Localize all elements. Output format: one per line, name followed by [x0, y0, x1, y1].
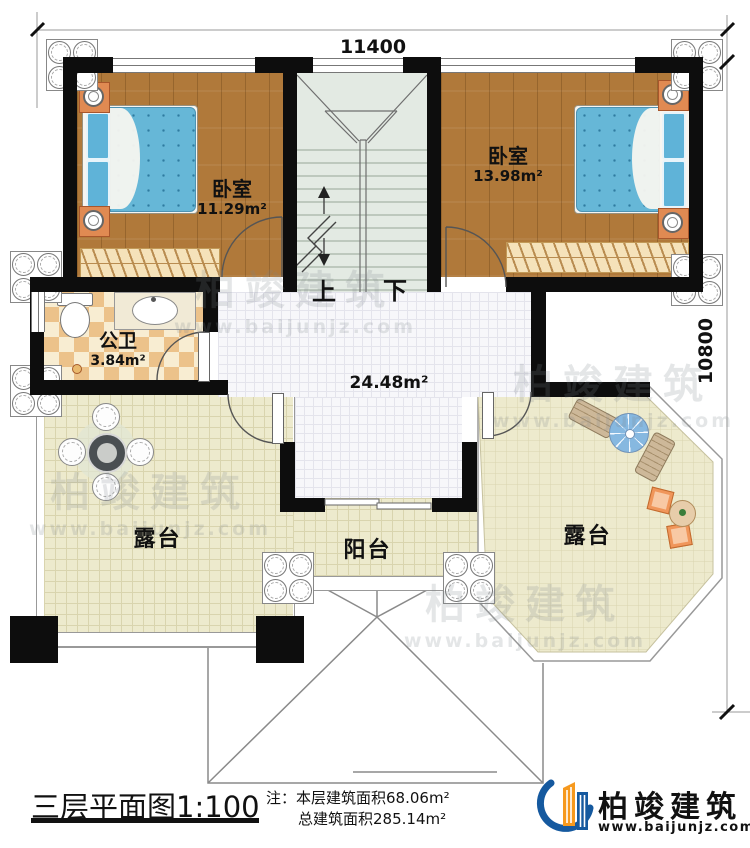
company-logo-icon: [536, 774, 594, 842]
dimension-depth: 10800: [695, 311, 717, 391]
note-line2: 总建筑面积285.14m²: [298, 810, 446, 828]
note-label: 注：: [266, 789, 296, 807]
note-line1: 本层建筑面积68.06m²: [296, 789, 450, 807]
plan-note: 注：本层建筑面积68.06m² 总建筑面积285.14m²: [266, 788, 450, 830]
floor-plan-page: 柏竣建筑 www.baijunjz.com 柏竣建筑 www.baijunjz.…: [0, 0, 750, 848]
company-logo-url: www.baijunjz.com: [598, 820, 750, 835]
dimension-width: 11400: [323, 36, 423, 58]
dimension-lines: [0, 0, 750, 848]
title-underline: [31, 818, 259, 823]
